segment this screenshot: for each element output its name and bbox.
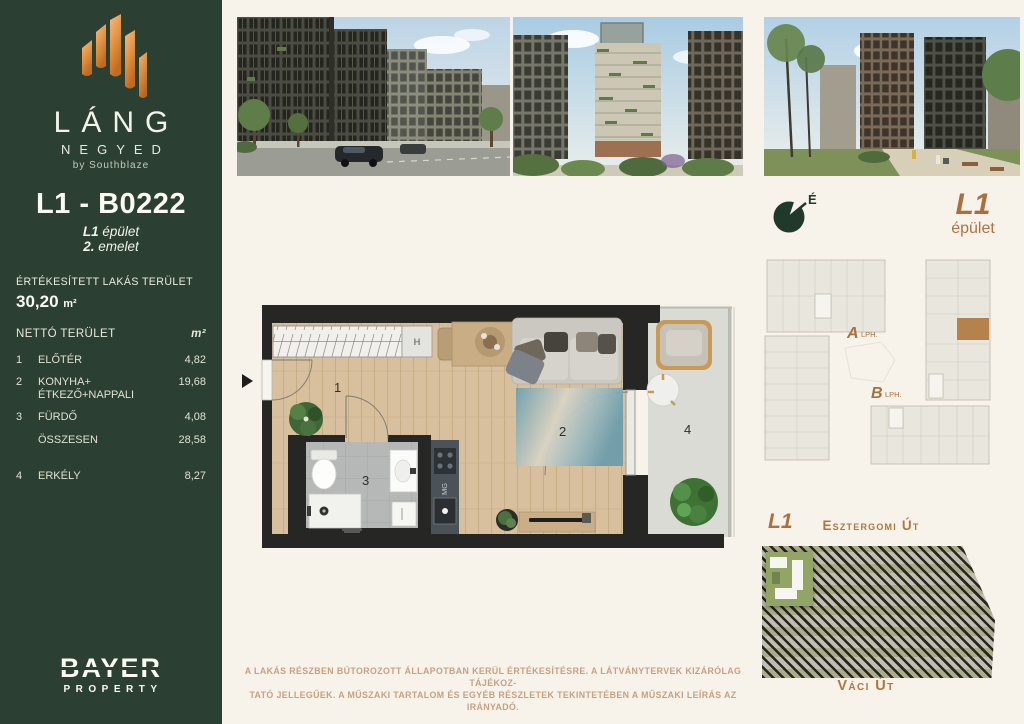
- street-label-top: Esztergomi Út: [786, 518, 956, 533]
- room-2-label: 2: [559, 424, 566, 439]
- wall-column-bottom: [623, 475, 648, 537]
- sofa: [504, 318, 622, 386]
- core-a: [815, 294, 831, 318]
- plant-hall: [289, 402, 323, 436]
- brand-byline: by Southblaze: [0, 160, 222, 171]
- stroller: [943, 158, 949, 164]
- disclaimer: A LAKÁS RÉSZBEN BÚTOROZOTT ÁLLAPOTBAN KE…: [240, 665, 746, 713]
- compass-icon: É: [766, 186, 832, 240]
- street-label-bottom: Váci Út: [766, 678, 966, 694]
- flame-logo-icon: [68, 14, 154, 104]
- floorplate-plan: A LPH. B LPH.: [763, 256, 1015, 484]
- core-b: [889, 408, 903, 428]
- bath-cabinet: [392, 502, 416, 526]
- building-badge-subtitle: épület: [928, 220, 1018, 237]
- room-1-label: 1: [334, 380, 341, 395]
- car-far: [400, 144, 426, 154]
- building-mid: [425, 69, 482, 149]
- washer-label: MG: [440, 483, 449, 495]
- bench: [962, 162, 978, 166]
- render-photo-street: [237, 17, 510, 176]
- brick-podium: [595, 141, 661, 157]
- kitchen-counter: MG: [431, 440, 459, 534]
- compass-north-label: É: [808, 192, 817, 207]
- area-value-unit: m²: [63, 298, 76, 310]
- building-badge-title: L1: [928, 190, 1018, 220]
- render-photo-park: [764, 17, 1020, 176]
- wardrobe-label: H: [414, 337, 421, 347]
- table-row: 2 KONYHA+ ÉTKEZŐ+NAPPALI 19,68: [16, 376, 206, 401]
- balcony-plant: [670, 478, 718, 526]
- shower: [307, 494, 361, 528]
- person: [912, 150, 916, 159]
- render-photo-courtyard: [513, 17, 743, 176]
- bayer-logo-wordmark: BAYER: [60, 655, 162, 681]
- tv-console: [519, 512, 595, 532]
- table-header-unit: m²: [160, 328, 206, 341]
- unit-floor-suffix: emelet: [98, 239, 139, 254]
- room-4-label: 4: [684, 422, 691, 437]
- sidebar: LÁNG NEGYED by Southblaze L1 - B0222 L1 …: [0, 0, 222, 724]
- area-title: ÉRTÉKESÍTETT LAKÁS TERÜLET: [16, 276, 208, 288]
- highlighted-unit: [957, 318, 989, 340]
- building-badge: L1 épület: [928, 190, 1018, 237]
- unit-floor: 2.: [83, 239, 94, 254]
- brochure-page: LÁNG NEGYED by Southblaze L1 - B0222 L1 …: [0, 0, 1024, 724]
- balcony-armchair: [656, 320, 712, 370]
- table-header: NETTÓ TERÜLET m²: [16, 328, 206, 341]
- unit-floor-line: 2. emelet: [0, 239, 222, 254]
- tree: [238, 99, 270, 131]
- table-row: 4 ERKÉLY 8,27: [16, 470, 206, 483]
- table-row: 1 ELŐTÉR 4,82: [16, 354, 206, 367]
- bathroom-wall-right: [418, 435, 431, 534]
- bathroom-sink: [390, 450, 417, 492]
- lift-b-label: B: [871, 385, 883, 402]
- wardrobe: H: [273, 326, 432, 357]
- unit-building-suffix: épület: [102, 224, 139, 239]
- unit-building-line: L1 épület: [0, 224, 222, 239]
- rug: [516, 388, 623, 466]
- lift-b-suffix: LPH.: [885, 390, 902, 399]
- building-left: [513, 35, 568, 159]
- area-value: 30,20 m²: [16, 292, 77, 312]
- site-map: L1 Esztergomi Út Váci Út: [756, 508, 1008, 714]
- net-area-table: NETTÓ TERÜLET m² 1 ELŐTÉR 4,82 2 KONYHA+…: [16, 328, 206, 493]
- unit-building: L1: [83, 224, 99, 239]
- wall-column-top: [623, 305, 648, 390]
- disclaimer-line-2: TATÓ JELLEGŰEK. A MŰSZAKI TARTALOM ÉS EG…: [240, 689, 746, 713]
- person: [936, 155, 940, 164]
- site-map-thumbnail: [766, 552, 813, 606]
- tower-brick: [860, 33, 914, 153]
- bayer-logo-subtitle: PROPERTY: [0, 684, 222, 695]
- room-3-label: 3: [362, 473, 369, 488]
- tower-dark: [924, 37, 986, 153]
- apartment-floorplan: H: [258, 302, 740, 550]
- table-row-total: ÖSSZESEN 28,58: [16, 434, 206, 447]
- lift-a-suffix: LPH.: [861, 330, 878, 339]
- building-right: [688, 31, 743, 159]
- toilet: [311, 450, 337, 489]
- cooktop: [434, 448, 456, 474]
- unit-id: L1 - B0222: [0, 188, 222, 221]
- brand-subtitle: NEGYED: [0, 142, 222, 157]
- table-row: 3 FÜRDŐ 4,08: [16, 411, 206, 424]
- brand-title: LÁNG: [0, 106, 222, 140]
- balcony-table: [647, 374, 679, 406]
- entrance-arrow-icon: [242, 374, 253, 388]
- building-near-2: [332, 29, 387, 155]
- bayer-property-logo: BAYER PROPERTY: [0, 655, 222, 695]
- building-far: [820, 65, 856, 151]
- bathroom-wall-left: [288, 435, 306, 534]
- disclaimer-line-1: A LAKÁS RÉSZBEN BÚTOROZOTT ÁLLAPOTBAN KE…: [240, 665, 746, 689]
- area-value-number: 30,20: [16, 292, 59, 311]
- bench: [990, 167, 1004, 171]
- table-header-label: NETTÓ TERÜLET: [16, 328, 160, 341]
- lift-a-label: A: [846, 325, 859, 342]
- plant-living: [496, 509, 518, 531]
- core-right: [929, 374, 943, 398]
